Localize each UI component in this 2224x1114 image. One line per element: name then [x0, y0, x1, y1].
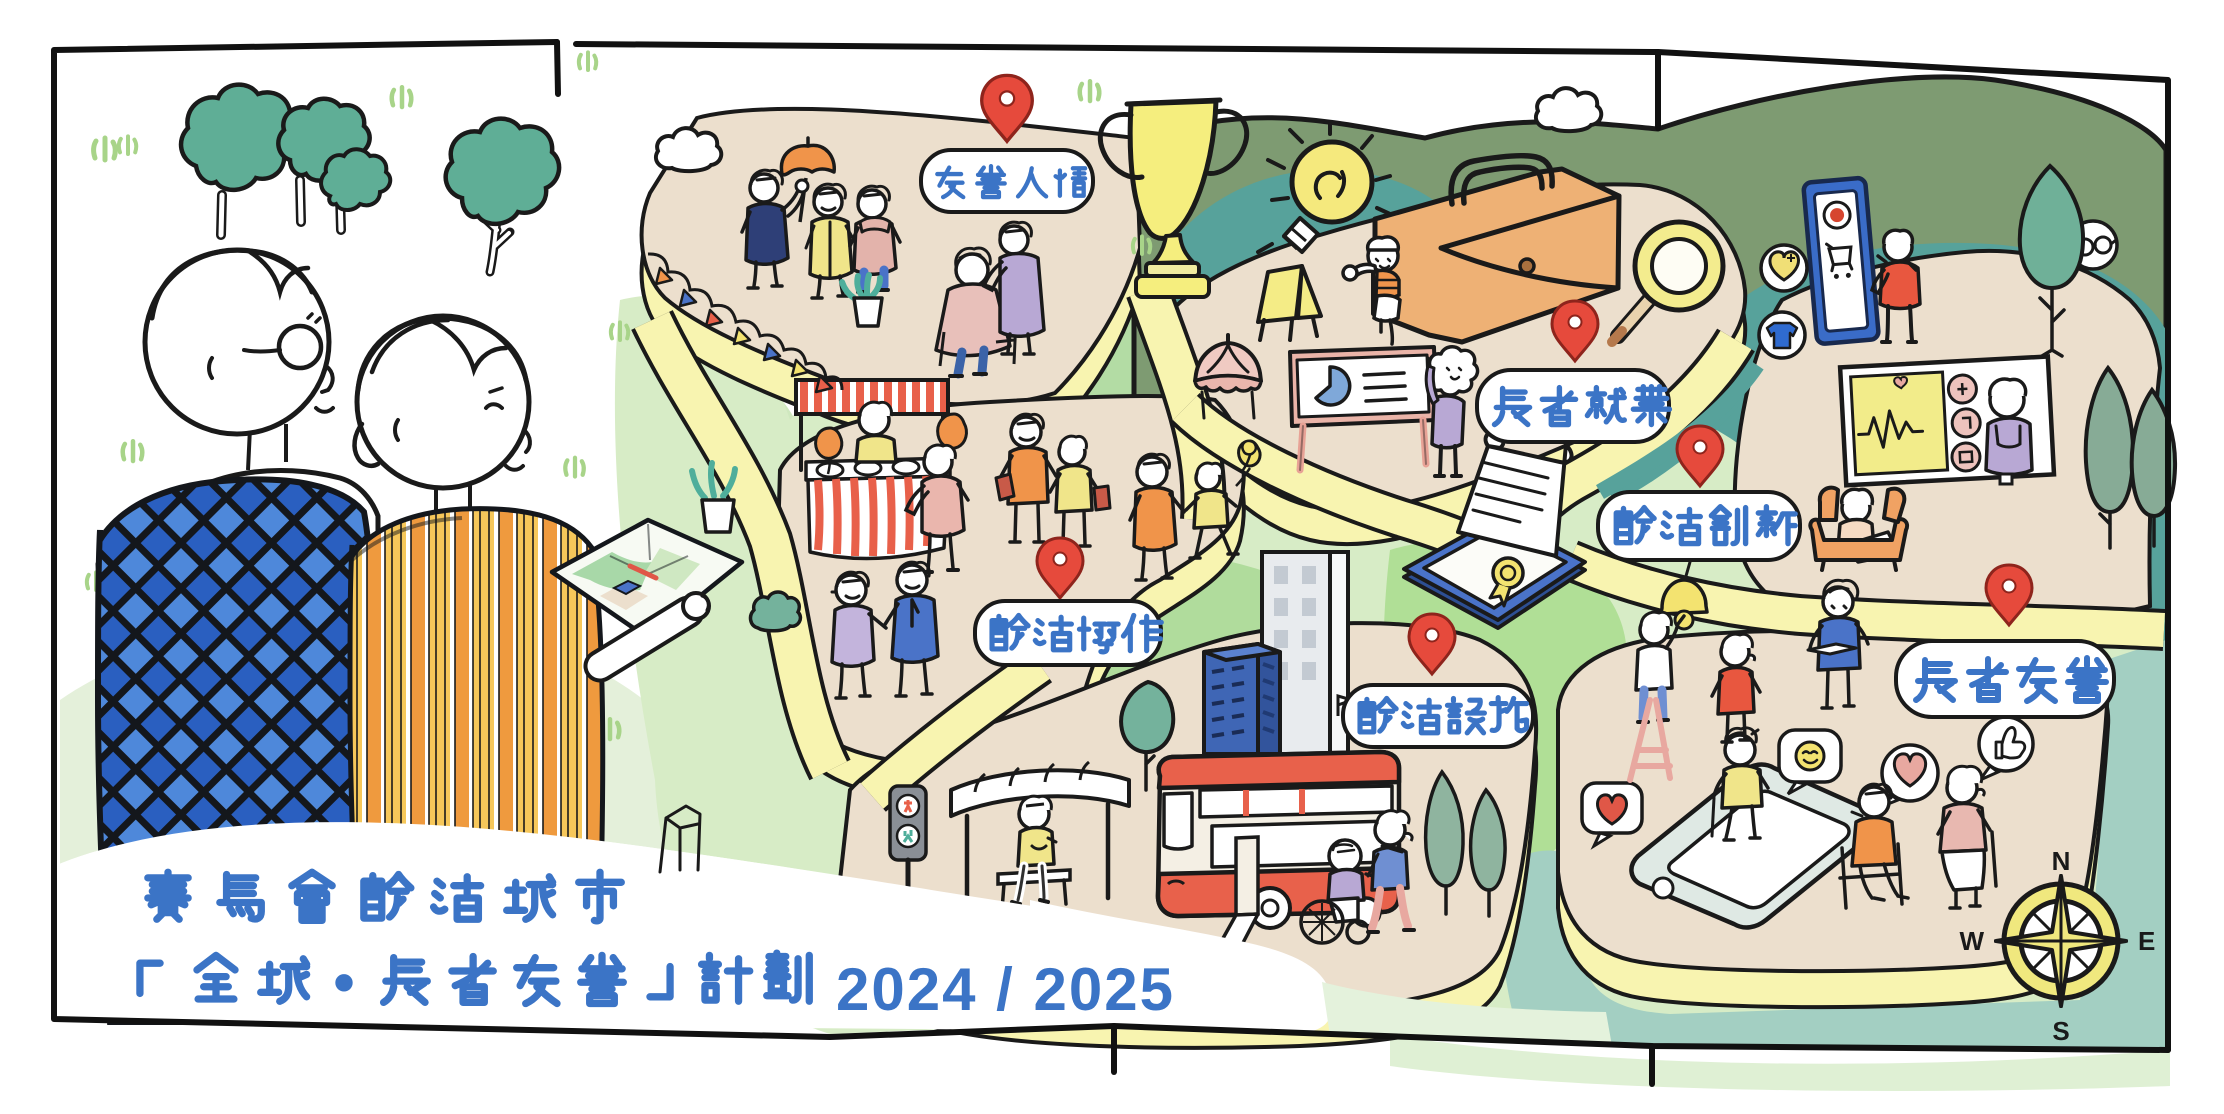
svg-text:2024 / 2025: 2024 / 2025 [836, 956, 1175, 1023]
svg-text:W: W [1959, 926, 1984, 956]
svg-text:N: N [2052, 846, 2071, 876]
svg-text:S: S [2052, 1016, 2069, 1046]
svg-text:E: E [2138, 926, 2155, 956]
